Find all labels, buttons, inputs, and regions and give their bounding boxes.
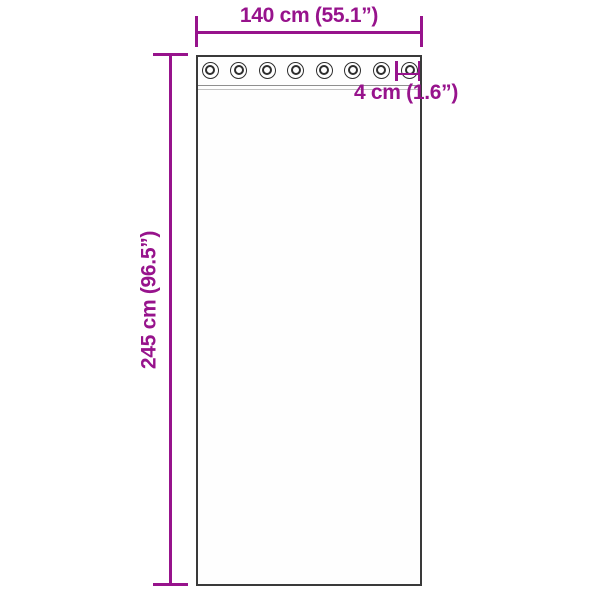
grommet-eyelet [373, 62, 390, 79]
grommet-eyelet [230, 62, 247, 79]
grommet-eyelet [259, 62, 276, 79]
diagram-canvas: 140 cm (55.1”) 245 cm (96.5”) 4 cm (1.6”… [0, 0, 600, 600]
grommet-eyelet [316, 62, 333, 79]
grommet-dimension-tick-right [418, 61, 421, 81]
grommet-row [202, 62, 419, 79]
grommet-eyelet [401, 62, 418, 79]
grommet-dimension-tick-left [395, 61, 398, 81]
height-dimension-label: 245 cm (96.5”) [139, 231, 160, 369]
height-dimension-line [169, 54, 172, 584]
width-dimension-line [196, 31, 422, 34]
grommet-eyelet [202, 62, 219, 79]
grommet-eyelet-hole [205, 65, 215, 75]
grommet-dimension-bar [395, 73, 420, 76]
width-dimension-label: 140 cm (55.1”) [196, 5, 422, 26]
grommet-dimension-label: 4 cm (1.6”) [354, 82, 458, 103]
grommet-eyelet-hole [234, 65, 244, 75]
grommet-eyelet-hole [262, 65, 272, 75]
height-dimension-cap-top [153, 53, 188, 56]
grommet-eyelet [287, 62, 304, 79]
grommet-eyelet [344, 62, 361, 79]
curtain-panel [196, 55, 422, 586]
grommet-eyelet-hole [319, 65, 329, 75]
height-dimension-cap-bottom [153, 583, 188, 586]
grommet-eyelet-hole [348, 65, 358, 75]
grommet-eyelet-hole [291, 65, 301, 75]
grommet-eyelet-hole [376, 65, 386, 75]
